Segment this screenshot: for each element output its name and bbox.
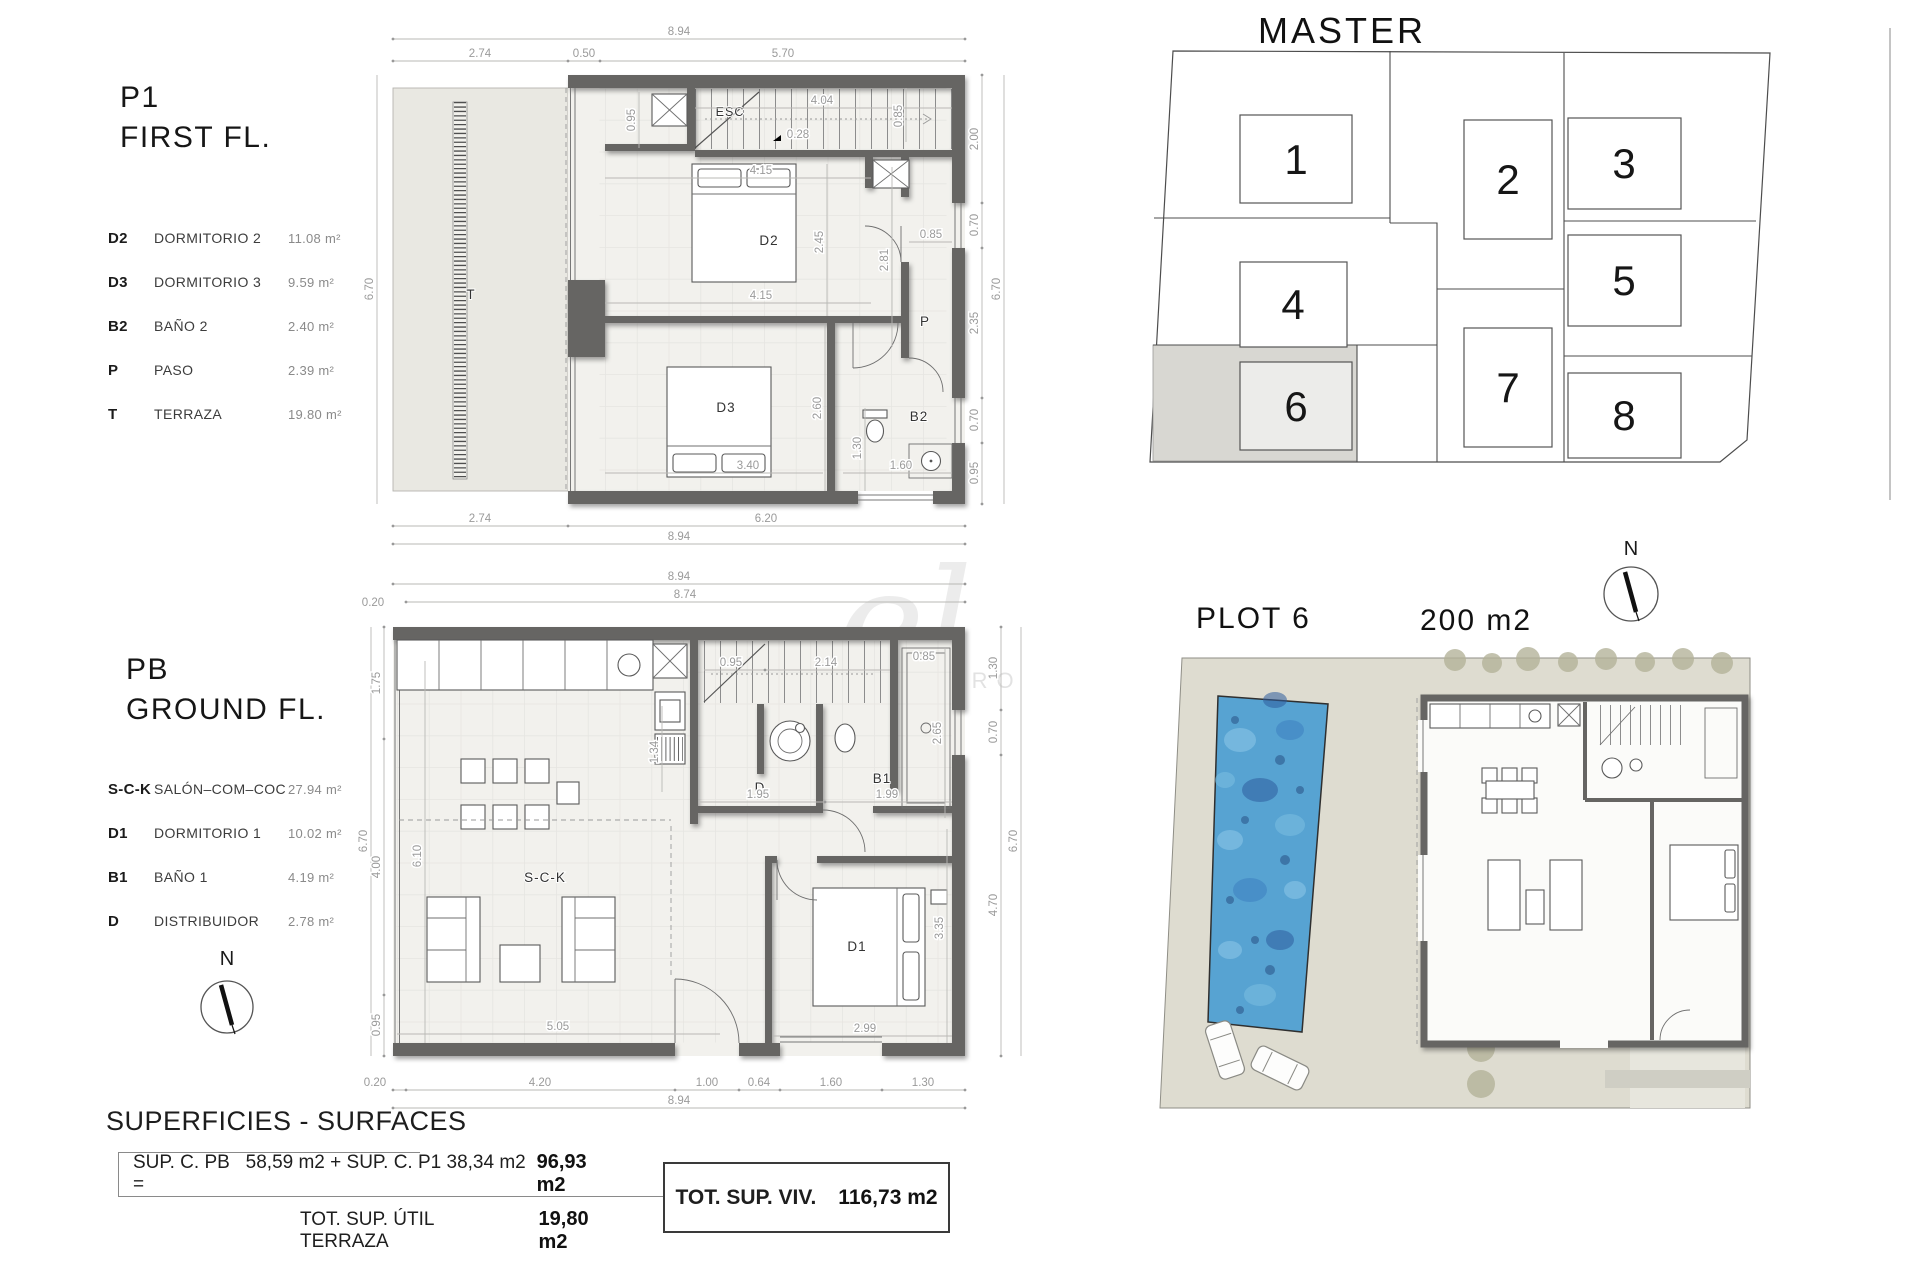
terrace-total-value: 19,80 m2 [539,1208,622,1254]
total-living-value: 116,73 m2 [838,1186,937,1210]
room-label-esc: ESC [716,105,745,119]
legend-abbr: P [108,362,154,379]
master-plan-map: 1 2 3 4 5 6 7 8 N [1130,0,1920,636]
svg-text:1: 1 [1284,136,1307,183]
pergola-strip [453,102,467,479]
svg-text:2.99: 2.99 [854,1023,876,1035]
ground-floor-name: GROUND FL. [126,690,326,730]
legend-name: BAÑO 2 [154,318,288,334]
terrace-total-line: TOT. SUP. ÚTIL TERRAZA 19,80 m2 [300,1208,622,1254]
svg-text:1.60: 1.60 [820,1077,842,1089]
ground-floor-title: PB GROUND FL. [126,650,326,729]
first-floor-plan: T D2 D3 B2 P ESC 8.94 2.74 0.50 5.70 6.7… [353,14,1033,562]
svg-text:1.30: 1.30 [912,1077,934,1089]
north-compass: N [192,945,266,1047]
svg-text:0.28: 0.28 [787,129,809,141]
svg-text:8.74: 8.74 [674,589,697,601]
svg-text:4.15: 4.15 [750,290,772,302]
house [1417,698,1745,1048]
svg-text:2.35: 2.35 [969,312,981,334]
svg-text:0.70: 0.70 [988,721,1000,743]
svg-text:0.70: 0.70 [969,214,981,236]
terrace-total-label: TOT. SUP. ÚTIL TERRAZA [300,1209,525,1253]
ground-floor-code: PB [126,650,326,690]
svg-text:8.94: 8.94 [668,1095,691,1107]
svg-text:2.00: 2.00 [969,128,981,150]
legend-name: DORMITORIO 3 [154,274,288,290]
north-label: N [220,948,234,970]
ground-floor-plan: S-C-K D1 B1 D 8.94 8.74 0.20 6.70 1.75 4… [353,556,1033,1124]
svg-text:1.99: 1.99 [876,789,898,801]
room-label-d2: D2 [759,233,778,248]
legend-name: DORMITORIO 1 [154,825,288,841]
kitchen-sink [618,654,640,676]
legend-abbr: B2 [108,318,154,335]
svg-text:8.94: 8.94 [668,531,691,543]
first-floor-name: FIRST FL. [120,118,271,158]
svg-text:1.95: 1.95 [747,789,769,801]
svg-text:7: 7 [1496,364,1519,411]
legend-name: SALÓN–COM–COC [154,781,288,797]
room-label-b2: B2 [910,409,929,424]
svg-text:4.04: 4.04 [811,95,834,107]
legend-abbr: T [108,406,154,423]
legend-abbr: S-C-K [108,781,154,798]
svg-text:1.75: 1.75 [371,672,383,694]
svg-text:6.70: 6.70 [358,830,370,852]
svg-text:6.70: 6.70 [991,278,1003,300]
svg-text:8.94: 8.94 [668,26,691,38]
surfaces-heading: SUPERFICIES - SURFACES [106,1106,467,1137]
sink-b1 [835,724,855,752]
svg-text:2.14: 2.14 [815,657,838,669]
svg-text:5.70: 5.70 [772,48,794,60]
north-compass-master: N [1604,538,1658,621]
svg-text:0.95: 0.95 [371,1014,383,1036]
svg-text:6.10: 6.10 [412,845,424,867]
svg-text:1.34: 1.34 [649,740,661,763]
washing-machine [770,721,810,761]
svg-text:6.20: 6.20 [755,513,777,525]
north-label: N [1624,538,1638,560]
svg-text:0.95: 0.95 [626,109,638,131]
svg-text:0.20: 0.20 [362,597,384,609]
svg-text:1.30: 1.30 [852,437,864,459]
compass-needle [1625,572,1636,612]
svg-text:0.70: 0.70 [969,409,981,431]
svg-text:6: 6 [1284,383,1307,430]
legend-name: DISTRIBUIDOR [154,913,288,929]
svg-text:4: 4 [1281,281,1304,328]
legend-name: DORMITORIO 2 [154,230,288,246]
house-dining [1482,768,1537,813]
svg-text:4.20: 4.20 [529,1077,551,1089]
svg-text:4.00: 4.00 [371,856,383,878]
surfaces-line1-value: 96,93 m2 [537,1151,620,1197]
svg-text:0.85: 0.85 [920,229,942,241]
svg-text:0.95: 0.95 [969,462,981,484]
svg-text:2.81: 2.81 [879,249,891,271]
bed-d2 [692,164,796,282]
legend-abbr: D2 [108,230,154,247]
svg-text:2.65: 2.65 [932,722,944,744]
room-label-p: P [920,314,930,329]
room-label-d3: D3 [716,400,735,415]
legend-name: BAÑO 1 [154,869,288,885]
svg-text:0.64: 0.64 [748,1077,771,1089]
svg-text:1.30: 1.30 [988,657,1000,679]
surfaces-box: SUP. C. PB 58,59 m2 + SUP. C. P1 38,34 m… [118,1152,663,1197]
total-living-box: TOT. SUP. VIV. 116,73 m2 [663,1162,950,1233]
room-label-terraza: T [466,287,475,302]
total-living-label: TOT. SUP. VIV. [675,1186,816,1210]
svg-text:8: 8 [1612,392,1635,439]
svg-text:4.70: 4.70 [988,894,1000,916]
svg-text:0.85: 0.85 [913,651,935,663]
svg-text:3: 3 [1612,140,1635,187]
svg-text:2: 2 [1496,156,1519,203]
room-label-sck: S-C-K [524,870,566,885]
svg-text:0.50: 0.50 [573,48,595,60]
svg-text:0.95: 0.95 [720,657,742,669]
svg-text:1.00: 1.00 [696,1077,718,1089]
svg-text:3.40: 3.40 [737,460,759,472]
legend-name: TERRAZA [154,406,288,422]
plot6-area: 200 m2 [1420,604,1532,638]
legend-abbr: D [108,913,154,930]
svg-text:6.70: 6.70 [1008,830,1020,852]
coffee-table [500,945,540,982]
svg-text:0.85: 0.85 [893,105,905,127]
svg-text:4.15: 4.15 [750,165,772,177]
svg-text:2.60: 2.60 [812,397,824,419]
legend-name: PASO [154,362,288,378]
room-label-d1: D1 [847,939,866,954]
svg-text:3.35: 3.35 [934,917,946,939]
room-label-b1: B1 [873,771,892,786]
legend-abbr: D1 [108,825,154,842]
legend-abbr: D3 [108,274,154,291]
svg-text:8.94: 8.94 [668,571,691,583]
first-floor-title: P1 FIRST FL. [120,78,271,157]
svg-text:2.74: 2.74 [469,513,492,525]
svg-text:0.20: 0.20 [364,1077,386,1089]
svg-text:2.45: 2.45 [814,231,826,253]
first-floor-code: P1 [120,78,271,118]
legend-abbr: B1 [108,869,154,886]
svg-text:2.74: 2.74 [469,48,492,60]
svg-text:6.70: 6.70 [364,278,376,300]
svg-text:1.60: 1.60 [890,460,912,472]
driveway [1605,1070,1750,1088]
surfaces-line1-label: SUP. C. PB 58,59 m2 + SUP. C. P1 38,34 m… [133,1152,537,1196]
house-bed [1670,845,1738,920]
svg-text:5: 5 [1612,257,1635,304]
compass-needle [221,985,232,1025]
svg-text:5.05: 5.05 [547,1021,569,1033]
plot6-title: PLOT 6 [1196,602,1311,636]
plot6-site-plan [1130,640,1920,1200]
